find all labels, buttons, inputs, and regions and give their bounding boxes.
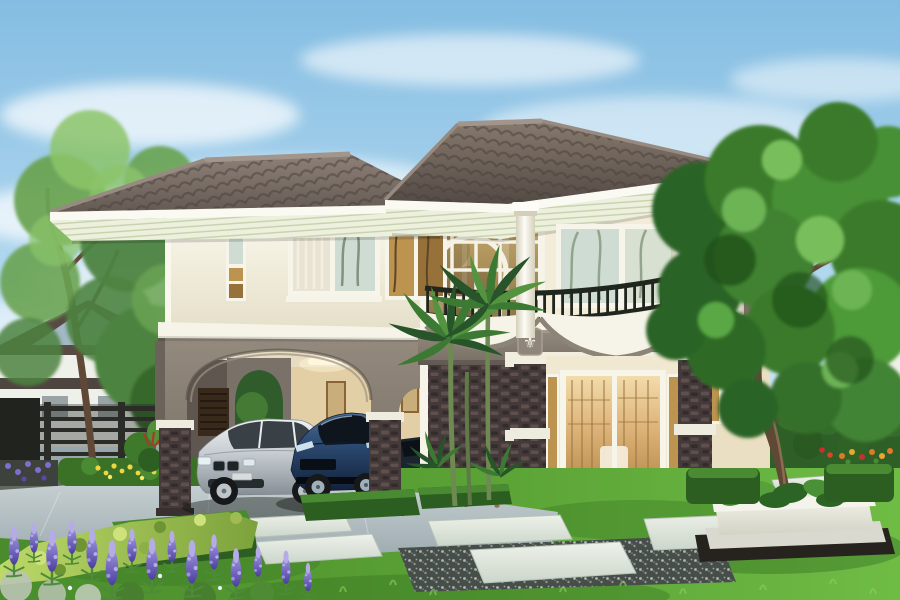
license-plate [232,473,252,480]
headlight [198,457,211,465]
grille [300,459,336,470]
architectural-rendering: ⚜ ⚜ [0,0,900,600]
louvered-door [198,388,229,436]
scene: ⚜ ⚜ [0,0,900,600]
carport-pillar-base-left [156,420,194,516]
grille [213,461,225,471]
